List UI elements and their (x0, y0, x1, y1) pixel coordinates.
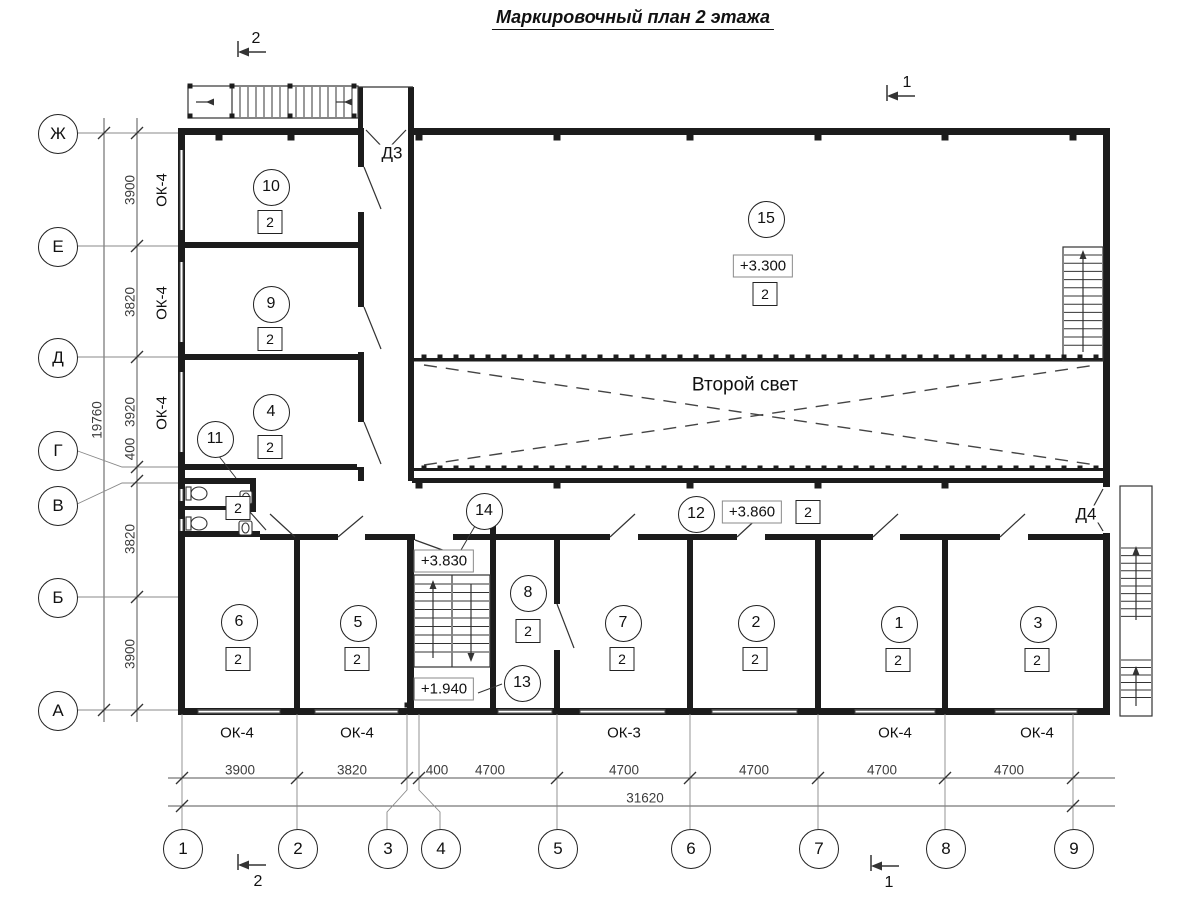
room-number-circle: 1 (881, 606, 918, 643)
void-label: Второй свет (688, 376, 802, 395)
room-number-circle: 6 (221, 604, 258, 641)
room-number-circle: 11 (197, 421, 234, 458)
window-mark-label: ОК-4 (155, 393, 170, 433)
dimension-label: 4700 (609, 763, 639, 777)
axis-bubble-bottom: 8 (926, 829, 966, 869)
window-mark-label: ОК-3 (604, 726, 644, 741)
room-type-badge: 2 (1025, 648, 1050, 672)
axis-bubble-bottom: 4 (421, 829, 461, 869)
room-type-badge: 2 (516, 619, 541, 643)
door-mark-label: Д4 (1074, 506, 1099, 523)
axis-bubble-left: Ж (38, 114, 78, 154)
dimension-label: 3820 (123, 524, 137, 554)
dimension-label: 4700 (994, 763, 1024, 777)
plan-title: Маркировочный план 2 этажа (492, 8, 774, 30)
room-number-circle: 2 (738, 605, 775, 642)
window-mark-label: ОК-4 (155, 170, 170, 210)
axis-bubble-left: Б (38, 578, 78, 618)
axis-bubble-left: Д (38, 338, 78, 378)
window-mark-label: ОК-4 (1017, 726, 1057, 741)
floor-plan-page: Маркировочный план 2 этажа ЖЕДГВБА123456… (0, 0, 1200, 900)
axis-bubble-bottom: 9 (1054, 829, 1094, 869)
dimension-label: 3900 (123, 639, 137, 669)
window-mark-label: ОК-4 (217, 726, 257, 741)
dimension-total-label: 31620 (626, 791, 664, 805)
room-type-badge: 2 (226, 647, 251, 671)
dimension-label: 400 (426, 763, 449, 777)
section-mark-label: 2 (254, 874, 263, 890)
dimension-label: 4700 (739, 763, 769, 777)
section-mark-label: 1 (885, 875, 894, 891)
axis-bubble-left: В (38, 486, 78, 526)
dimension-total-label: 19760 (90, 401, 104, 439)
door-mark-label: Д3 (380, 145, 405, 162)
elevation-label: +3.860 (722, 501, 782, 524)
axis-bubble-bottom: 6 (671, 829, 711, 869)
section-mark-label: 2 (252, 31, 261, 47)
room-number-circle: 9 (253, 286, 290, 323)
dimension-label: 3920 (123, 397, 137, 427)
elevation-label: +3.830 (414, 550, 474, 573)
axis-bubble-left: Г (38, 431, 78, 471)
axis-bubble-left: А (38, 691, 78, 731)
elevation-label: +1.940 (414, 678, 474, 701)
elevation-label: +3.300 (733, 255, 793, 278)
axis-bubble-bottom: 5 (538, 829, 578, 869)
room-type-badge: 2 (258, 210, 283, 234)
room-type-badge: 2 (796, 500, 821, 524)
room-number-circle: 8 (510, 575, 547, 612)
room-type-badge: 2 (258, 327, 283, 351)
axis-bubble-bottom: 1 (163, 829, 203, 869)
room-type-badge: 2 (258, 435, 283, 459)
room-number-circle: 12 (678, 496, 715, 533)
room-number-circle: 7 (605, 605, 642, 642)
room-number-circle: 5 (340, 605, 377, 642)
axis-bubble-bottom: 3 (368, 829, 408, 869)
dimension-label: 3820 (123, 287, 137, 317)
room-number-circle: 14 (466, 493, 503, 530)
room-number-circle: 10 (253, 169, 290, 206)
dimension-label: 3900 (123, 175, 137, 205)
window-mark-label: ОК-4 (337, 726, 377, 741)
dimension-label: 3820 (337, 763, 367, 777)
dimension-label: 3900 (225, 763, 255, 777)
axis-bubble-left: Е (38, 227, 78, 267)
room-number-circle: 3 (1020, 606, 1057, 643)
room-type-badge: 2 (753, 282, 778, 306)
section-mark-label: 1 (903, 75, 912, 91)
window-mark-label: ОК-4 (155, 283, 170, 323)
room-type-badge: 2 (886, 648, 911, 672)
dimension-label: 4700 (475, 763, 505, 777)
room-type-badge: 2 (226, 496, 251, 520)
axis-bubble-bottom: 2 (278, 829, 318, 869)
dimension-label: 400 (123, 438, 137, 461)
window-mark-label: ОК-4 (875, 726, 915, 741)
room-type-badge: 2 (610, 647, 635, 671)
room-number-circle: 13 (504, 665, 541, 702)
axis-bubble-bottom: 7 (799, 829, 839, 869)
room-type-badge: 2 (345, 647, 370, 671)
room-number-circle: 15 (748, 201, 785, 238)
room-type-badge: 2 (743, 647, 768, 671)
room-number-circle: 4 (253, 394, 290, 431)
dimension-label: 4700 (867, 763, 897, 777)
